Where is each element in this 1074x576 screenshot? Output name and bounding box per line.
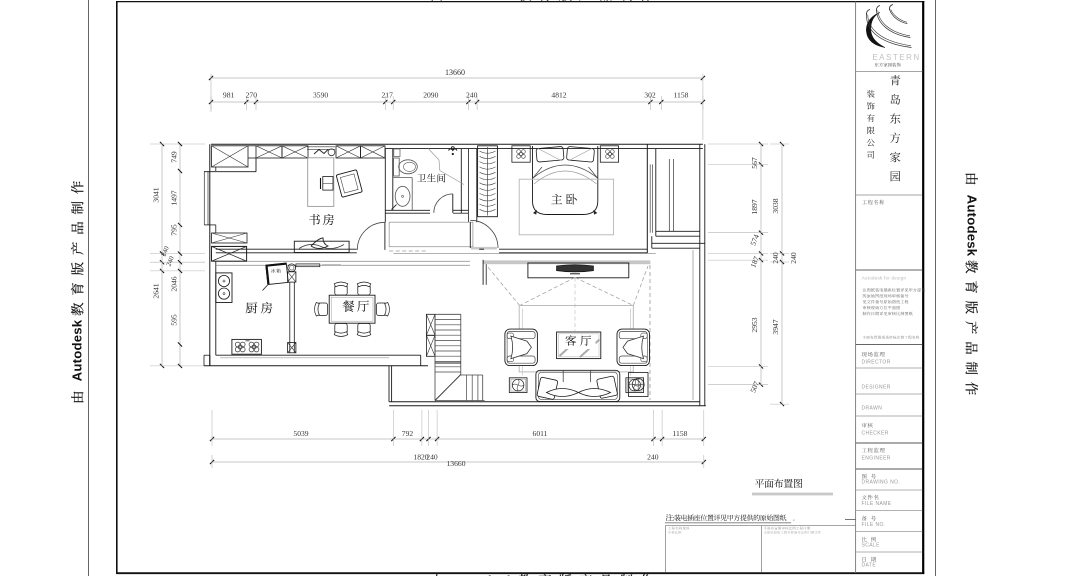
svg-text:SCALE: SCALE: [862, 542, 881, 548]
svg-text:240: 240: [466, 91, 478, 100]
svg-text:240: 240: [771, 252, 780, 264]
svg-text:792: 792: [402, 429, 414, 438]
svg-text:.: .: [793, 514, 795, 522]
svg-text:3041: 3041: [152, 187, 161, 202]
svg-text:2953: 2953: [750, 317, 759, 332]
svg-text:DESIGNER: DESIGNER: [862, 385, 891, 391]
svg-text:DATE: DATE: [862, 563, 877, 569]
svg-text:2090: 2090: [423, 91, 438, 100]
svg-text:Autodesk: Autodesk: [70, 319, 85, 381]
svg-text:595: 595: [170, 314, 179, 326]
svg-text:270: 270: [246, 91, 258, 100]
svg-text:2046: 2046: [170, 276, 179, 291]
svg-text:DRAWING NO.: DRAWING NO.: [862, 480, 901, 486]
svg-text:DIRECTOR: DIRECTOR: [862, 360, 891, 366]
svg-text:Autodesk for design: Autodesk for design: [862, 276, 907, 281]
svg-text:217: 217: [382, 91, 394, 100]
svg-text:240: 240: [426, 452, 438, 461]
svg-text:1158: 1158: [673, 429, 688, 438]
svg-text:3590: 3590: [313, 91, 328, 100]
svg-text:240: 240: [789, 252, 798, 264]
svg-text:1497: 1497: [170, 190, 179, 205]
svg-text:3038: 3038: [771, 198, 780, 213]
svg-text:302: 302: [644, 91, 656, 100]
svg-text:13660: 13660: [445, 68, 465, 77]
svg-text:1158: 1158: [674, 91, 689, 100]
svg-text:795: 795: [170, 224, 179, 236]
svg-text:3947: 3947: [771, 319, 780, 334]
svg-text:Autodesk: Autodesk: [964, 195, 979, 257]
svg-text:EASTERN: EASTERN: [872, 53, 920, 62]
svg-text:5039: 5039: [293, 429, 308, 438]
svg-text:1897: 1897: [750, 199, 759, 214]
svg-text:DRAWN: DRAWN: [862, 406, 883, 412]
svg-text:6011: 6011: [533, 429, 548, 438]
svg-text:240: 240: [647, 452, 659, 461]
svg-text:749: 749: [170, 151, 179, 163]
svg-text:FILE NAME: FILE NAME: [862, 501, 892, 507]
svg-text:2641: 2641: [152, 283, 161, 298]
svg-text::: :: [673, 514, 675, 522]
svg-text:13660: 13660: [447, 459, 466, 468]
svg-text:567: 567: [750, 157, 759, 169]
svg-text:FILE NO.: FILE NO.: [862, 522, 886, 528]
svg-text:981: 981: [223, 91, 235, 100]
svg-text:Autodesk: Autodesk: [453, 0, 515, 2]
svg-text:CHECKER: CHECKER: [862, 431, 889, 437]
svg-text:4812: 4812: [551, 91, 566, 100]
svg-text:ENGINEER: ENGINEER: [862, 456, 891, 462]
